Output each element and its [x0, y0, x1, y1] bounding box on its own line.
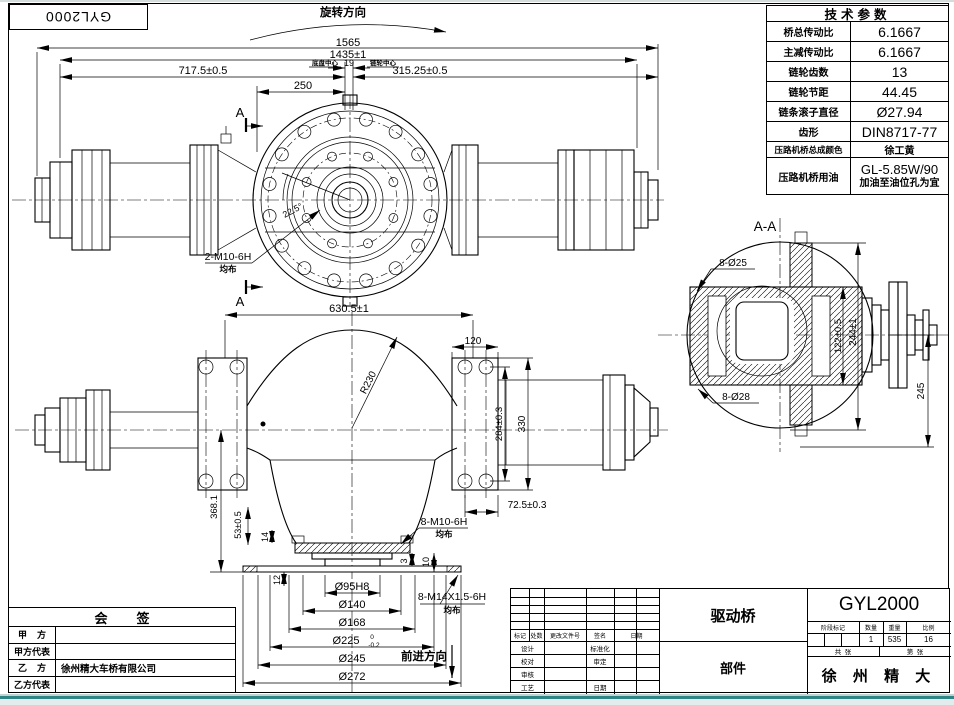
tech-value: 徐工黄: [851, 142, 948, 157]
forward-direction-label: 前进方向: [401, 649, 447, 663]
countersign-row-party-a: 甲 方: [9, 627, 235, 643]
dim-10: 10: [421, 557, 431, 567]
dim-95h8: Ø95H8: [335, 581, 370, 593]
countersign-row-party-b: 乙 方 徐州精大车桥有限公司: [9, 659, 235, 676]
sign-review: 审核: [511, 667, 544, 680]
front-axle-left: [35, 126, 256, 255]
prop-weight-value: 535: [883, 633, 906, 646]
tech-value: GL-5.85W/90 加油至油位孔为宜: [851, 158, 948, 194]
window-bottom-edge-pale: [0, 699, 954, 705]
tech-value: DIN8717-77: [851, 122, 948, 141]
dim-245-section: 245: [916, 382, 927, 399]
dim-19: 19: [344, 58, 354, 68]
sheet-total: 共 张: [807, 646, 879, 656]
cs-value: [56, 644, 235, 660]
sign-date: 日期: [586, 680, 614, 694]
prop-header-stage: 阶段标记: [807, 621, 859, 633]
section-view-aa: A-A 8-Ø25 8-Ø28 122±0.5 244±1 245: [658, 218, 948, 452]
cs-label: 甲方代表: [9, 644, 56, 660]
sign-standardization: 标准化: [586, 641, 614, 654]
countersign-title: 会 签: [9, 608, 235, 627]
cs-value: [56, 627, 235, 643]
callout-8m14: 8-M14X1.5-6H: [418, 591, 486, 603]
dim-284: 284±0.3: [494, 407, 505, 441]
oil-spec: GL-5.85W/90: [861, 163, 938, 178]
sign-approve: 审定: [586, 654, 614, 667]
plan-view-dimensions: 630.5±1 120 R230 284±0.3 330 368.1 53±0.…: [209, 303, 547, 687]
tech-table-title-text: 技术参数: [824, 4, 890, 23]
dim-225-tol-top: 0: [370, 634, 374, 641]
prop-header-scale: 比例: [906, 621, 951, 633]
callout-8m10-note: 均布: [435, 529, 453, 539]
tech-row-tooth-form: 齿形 DIN8717-77: [767, 121, 948, 141]
cs-value: 徐州精大车桥有限公司: [56, 660, 235, 676]
dim-368: 368.1: [209, 495, 220, 519]
bolt-note: 均布: [219, 264, 237, 274]
part-name: 驱动桥: [659, 589, 807, 641]
dim-630: 630.5±1: [329, 303, 369, 315]
section-mark-a-top: A: [236, 105, 245, 120]
cs-label: 乙 方: [9, 660, 56, 676]
base-center-note: 底盘中心: [312, 58, 339, 67]
dim-330: 330: [517, 415, 528, 432]
bolt-callout-2m10: 2-M10-6H: [205, 251, 252, 263]
tech-label: 齿形: [767, 122, 851, 141]
sign-check: 校对: [511, 654, 544, 667]
tech-label: 压路机桥总成颜色: [767, 142, 851, 157]
part-type: 部件: [659, 641, 807, 694]
front-view-dimensions: 旋转方向 1565 1435±1 717.5±0.5 315.25±0.5 25…: [37, 5, 658, 309]
tech-value: 13: [851, 62, 948, 81]
holes-8d25: 8-Ø25: [719, 258, 747, 269]
rev-header-docno: 更改文件号: [544, 629, 586, 641]
sign-process: 工艺: [511, 680, 544, 694]
holes-8d28: 8-Ø28: [722, 392, 750, 403]
angle-22-5: 22.5°: [281, 201, 305, 220]
dim-315: 315.25±0.5: [393, 65, 448, 77]
rev-header-mark: 标记: [511, 629, 529, 641]
rev-header-sign: 签名: [586, 629, 614, 641]
dim-120: 120: [465, 336, 482, 347]
tech-label: 链轮节距: [767, 82, 851, 101]
tech-table-title: 技术参数: [767, 6, 948, 21]
countersign-table: 会 签 甲 方 甲方代表 乙 方 徐州精大车桥有限公司 乙方代表: [8, 607, 236, 693]
prop-header-qty: 数量: [859, 621, 883, 633]
tech-value: 6.1667: [851, 42, 948, 61]
tech-row-oil: 压路机桥用油 GL-5.85W/90 加油至油位孔为宜: [767, 157, 948, 194]
callout-8m10: 8-M10-6H: [421, 516, 468, 528]
tech-row-roller: 链条滚子直径 Ø27.94: [767, 101, 948, 121]
tech-params-table: 技术参数 桥总传动比 6.1667 主减传动比 6.1667 链轮齿数 13 链…: [766, 5, 949, 195]
tech-value: 44.45: [851, 82, 948, 101]
tech-row-ratio-main: 主减传动比 6.1667: [767, 41, 948, 61]
rev-header-date: 日期: [614, 629, 659, 641]
section-title: A-A: [754, 219, 777, 234]
dim-225: Ø225: [333, 635, 360, 647]
tech-label: 链条滚子直径: [767, 102, 851, 121]
dim-r230: R230: [358, 369, 379, 396]
cs-value: [56, 677, 235, 693]
tech-value: Ø27.94: [851, 102, 948, 121]
plan-right-flange-holes: [458, 360, 493, 488]
tech-row-teeth: 链轮齿数 13: [767, 61, 948, 81]
tech-label: 主减传动比: [767, 42, 851, 61]
tech-row-ratio-total: 桥总传动比 6.1667: [767, 21, 948, 41]
oil-note: 加油至油位孔为宜: [860, 178, 940, 190]
tech-label: 链轮齿数: [767, 62, 851, 81]
dim-717: 717.5±0.5: [179, 65, 228, 77]
title-block: 标记 处数 更改文件号 签名 日期 设计 标准化 校对 审定 审核 工艺 日期 …: [510, 588, 950, 693]
drawing-number-box: GYL2000: [9, 4, 148, 30]
tech-value: 6.1667: [851, 22, 948, 41]
dim-53: 53±0.5: [233, 511, 243, 538]
drawing-number-rotated: GYL2000: [45, 9, 111, 25]
dim-272: Ø272: [339, 671, 366, 683]
rev-header-count: 处数: [529, 629, 544, 641]
sheet-number: 第 张: [879, 646, 951, 656]
rotation-direction-label: 旋转方向: [319, 5, 366, 19]
cs-label: 甲 方: [9, 627, 56, 643]
tech-label: 桥总传动比: [767, 22, 851, 41]
dim-250: 250: [294, 80, 312, 92]
dim-3: 3: [399, 558, 409, 563]
dim-72: 72.5±0.3: [508, 500, 547, 511]
company-name: 徐 州 精 大: [807, 656, 951, 694]
dim-225-tol-bot: -0.2: [368, 642, 380, 649]
dim-1565: 1565: [336, 37, 360, 49]
sprocket-center-note: 链轮中心: [369, 58, 397, 67]
sign-design: 设计: [511, 641, 544, 654]
drawing-number: GYL2000: [807, 589, 951, 621]
front-view: [12, 95, 664, 306]
prop-qty-value: 1: [859, 633, 883, 646]
prop-scale-value: 16: [906, 633, 951, 646]
prop-header-weight: 重量: [883, 621, 906, 633]
tech-label: 压路机桥用油: [767, 158, 851, 194]
cad-drawing-page: 旋转方向 1565 1435±1 717.5±0.5 315.25±0.5 25…: [0, 0, 954, 705]
section-mark-a-bottom: A: [236, 294, 245, 309]
callout-8m14-note: 均布: [443, 605, 461, 615]
dim-122: 122±0.5: [833, 319, 844, 353]
countersign-row-party-a-rep: 甲方代表: [9, 643, 235, 660]
tech-row-pitch: 链轮节距 44.45: [767, 81, 948, 101]
dim-244: 244±1: [848, 318, 859, 346]
dim-168: Ø168: [339, 617, 366, 629]
tech-row-color: 压路机桥总成颜色 徐工黄: [767, 141, 948, 157]
countersign-row-party-b-rep: 乙方代表: [9, 676, 235, 693]
cs-label: 乙方代表: [9, 677, 56, 693]
dim-12: 12: [272, 575, 282, 585]
dim-245-plan: Ø245: [339, 653, 366, 665]
sign-blank: [586, 667, 614, 680]
dim-140: Ø140: [339, 599, 366, 611]
dim-14: 14: [260, 532, 270, 542]
